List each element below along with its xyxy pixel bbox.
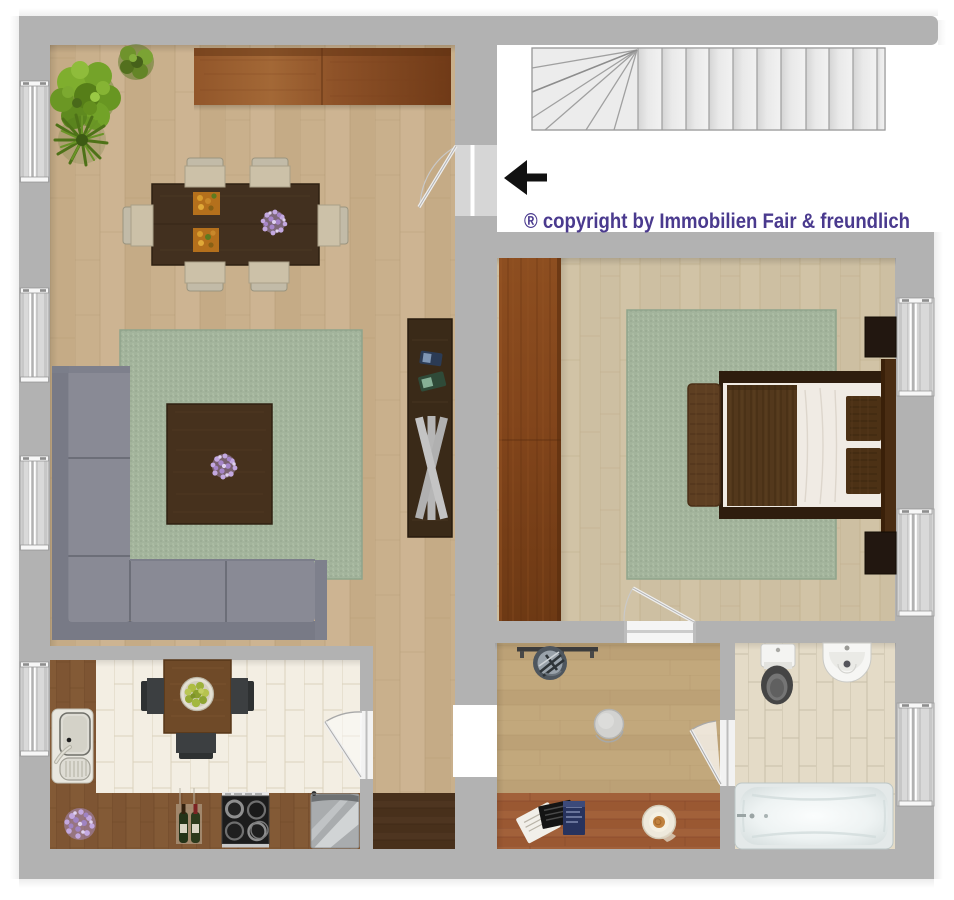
svg-text:® copyright by Immobilien Fair: ® copyright by Immobilien Fair & freundl… bbox=[524, 210, 910, 233]
